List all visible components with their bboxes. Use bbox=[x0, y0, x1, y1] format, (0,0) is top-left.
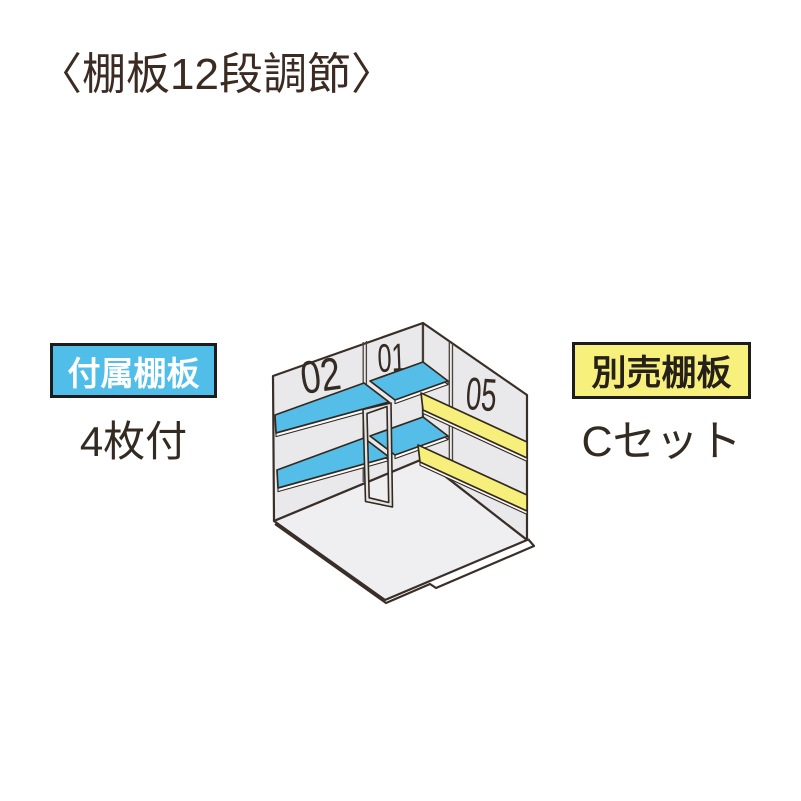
shelf-label-05: 05 bbox=[464, 369, 498, 422]
shed-isometric-diagram: 02 01 05 bbox=[0, 0, 801, 801]
page: 〈棚板12段調節〉 付属棚板 4枚付 別売棚板 Cセット 02 01 05 bbox=[0, 0, 801, 801]
